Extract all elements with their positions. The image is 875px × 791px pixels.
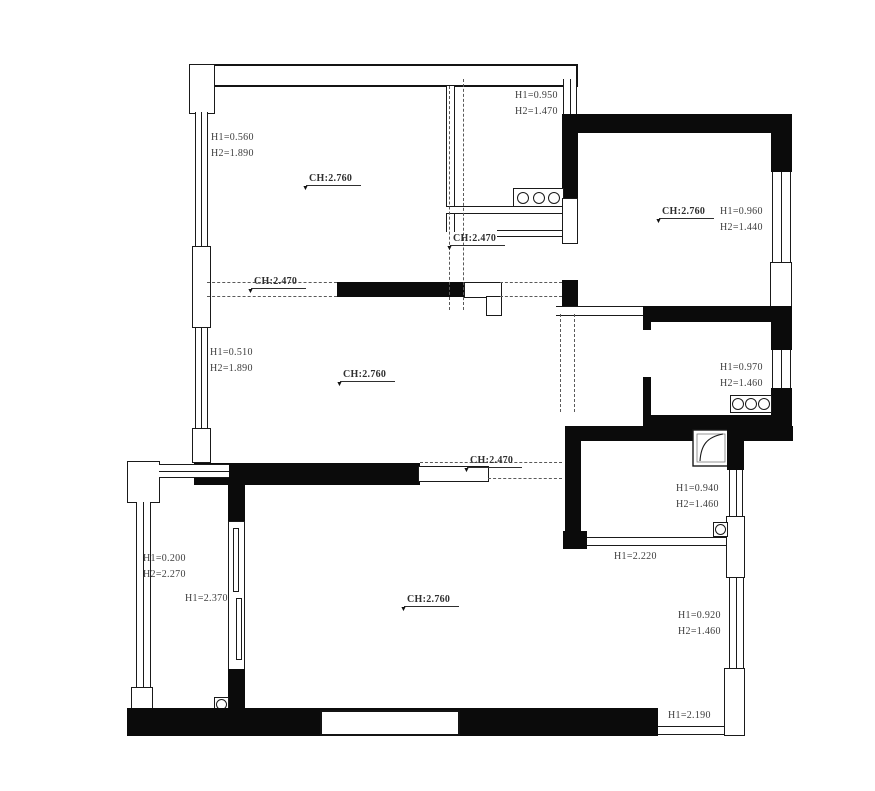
dimension-label: H1=0.200H2=2.270 [143, 551, 186, 582]
wall-segment [563, 531, 587, 549]
ceiling-height-label: CH:2.470▼ [467, 455, 522, 468]
wall-segment [643, 306, 792, 322]
window [320, 710, 460, 736]
dimension-label: H1=0.940H2=1.460 [676, 481, 719, 512]
window [159, 464, 229, 478]
opening-lintel [658, 726, 727, 735]
floor-drain-icon [713, 522, 728, 537]
door-lintel [556, 306, 644, 316]
wall-segment [643, 322, 651, 330]
window [729, 578, 744, 668]
ceiling-height-label: CH:2.470▼ [251, 276, 306, 289]
door-lintel [587, 537, 726, 546]
wall-segment [565, 426, 793, 441]
ceiling-beam [337, 282, 464, 297]
dashed-level-line [560, 314, 561, 412]
ceiling-height-label: CH:2.760▼ [306, 173, 361, 186]
wall-segment [643, 377, 651, 417]
level-marker-icon: ▼ [247, 287, 254, 295]
floor-plan-canvas: CH:2.760▼CH:2.470▼CH:2.470▼CH:2.760▼CH:2… [0, 0, 875, 791]
wall-pier [131, 687, 153, 710]
dimension-label: H1=0.560H2=1.890 [211, 130, 254, 161]
dashed-level-line [463, 79, 464, 310]
level-marker-icon: ▼ [446, 244, 453, 252]
partition-wall [497, 230, 569, 237]
window [772, 350, 791, 388]
burner-icon [758, 398, 770, 410]
dimension-label: H1=0.960H2=1.440 [720, 204, 763, 235]
wall-pier [562, 198, 578, 244]
level-marker-icon: ▼ [463, 466, 470, 474]
burner-icon [517, 192, 529, 204]
dashed-level-line [574, 314, 575, 412]
wall-segment [562, 114, 792, 133]
wall-pier [726, 516, 745, 578]
burner-icon [548, 192, 560, 204]
corner-column [127, 461, 160, 503]
wall-pier [770, 262, 792, 308]
window [195, 328, 208, 428]
wall-segment [771, 114, 792, 172]
window [195, 112, 208, 246]
dimension-label: H1=2.220 [614, 549, 657, 565]
dimension-label: H1=0.970H2=1.460 [720, 360, 763, 391]
dimension-label: H1=0.950H2=1.470 [515, 88, 558, 119]
top-wall [193, 64, 578, 87]
wall-segment [228, 669, 245, 711]
burner-icon [745, 398, 757, 410]
cooktop-counter [730, 395, 772, 413]
column-outline [486, 296, 502, 316]
level-marker-icon: ▼ [336, 380, 343, 388]
dashed-level-line [488, 478, 562, 479]
ceiling-height-label: CH:2.760▼ [659, 206, 714, 219]
burner-icon [533, 192, 545, 204]
cooktop-counter [513, 188, 564, 207]
window [563, 79, 577, 117]
window [136, 502, 151, 688]
level-marker-icon: ▼ [302, 184, 309, 192]
ceiling-height-label: CH:2.760▼ [404, 594, 459, 607]
wall-segment [228, 483, 245, 523]
ceiling-height-label: CH:2.760▼ [340, 369, 395, 382]
dimension-label: H1=0.510H2=1.890 [210, 345, 253, 376]
level-marker-icon: ▼ [400, 605, 407, 613]
dashed-level-line [207, 296, 337, 297]
window [729, 470, 743, 516]
wall-pier [192, 428, 211, 463]
burner-icon [732, 398, 744, 410]
wall-segment [771, 322, 792, 350]
door-lintel [418, 466, 489, 482]
corner-column [189, 64, 215, 114]
dimension-label: H1=2.190 [668, 708, 711, 724]
wall-segment [562, 280, 578, 308]
dashed-level-line [449, 86, 450, 310]
ceiling-height-label: CH:2.470▼ [450, 233, 505, 246]
window [772, 172, 791, 262]
level-marker-icon: ▼ [655, 217, 662, 225]
wall-segment [565, 426, 581, 548]
dashed-level-line [500, 282, 562, 283]
sliding-door-panel [233, 528, 239, 592]
shower-tray-icon [692, 429, 730, 467]
dashed-level-line [500, 296, 562, 297]
sliding-door-panel [236, 598, 242, 660]
wall-pier [192, 246, 211, 328]
dimension-label: H1=2.370 [185, 591, 228, 607]
wall-segment [727, 426, 744, 470]
dimension-label: H1=0.920H2=1.460 [678, 608, 721, 639]
corner-column [724, 668, 745, 736]
